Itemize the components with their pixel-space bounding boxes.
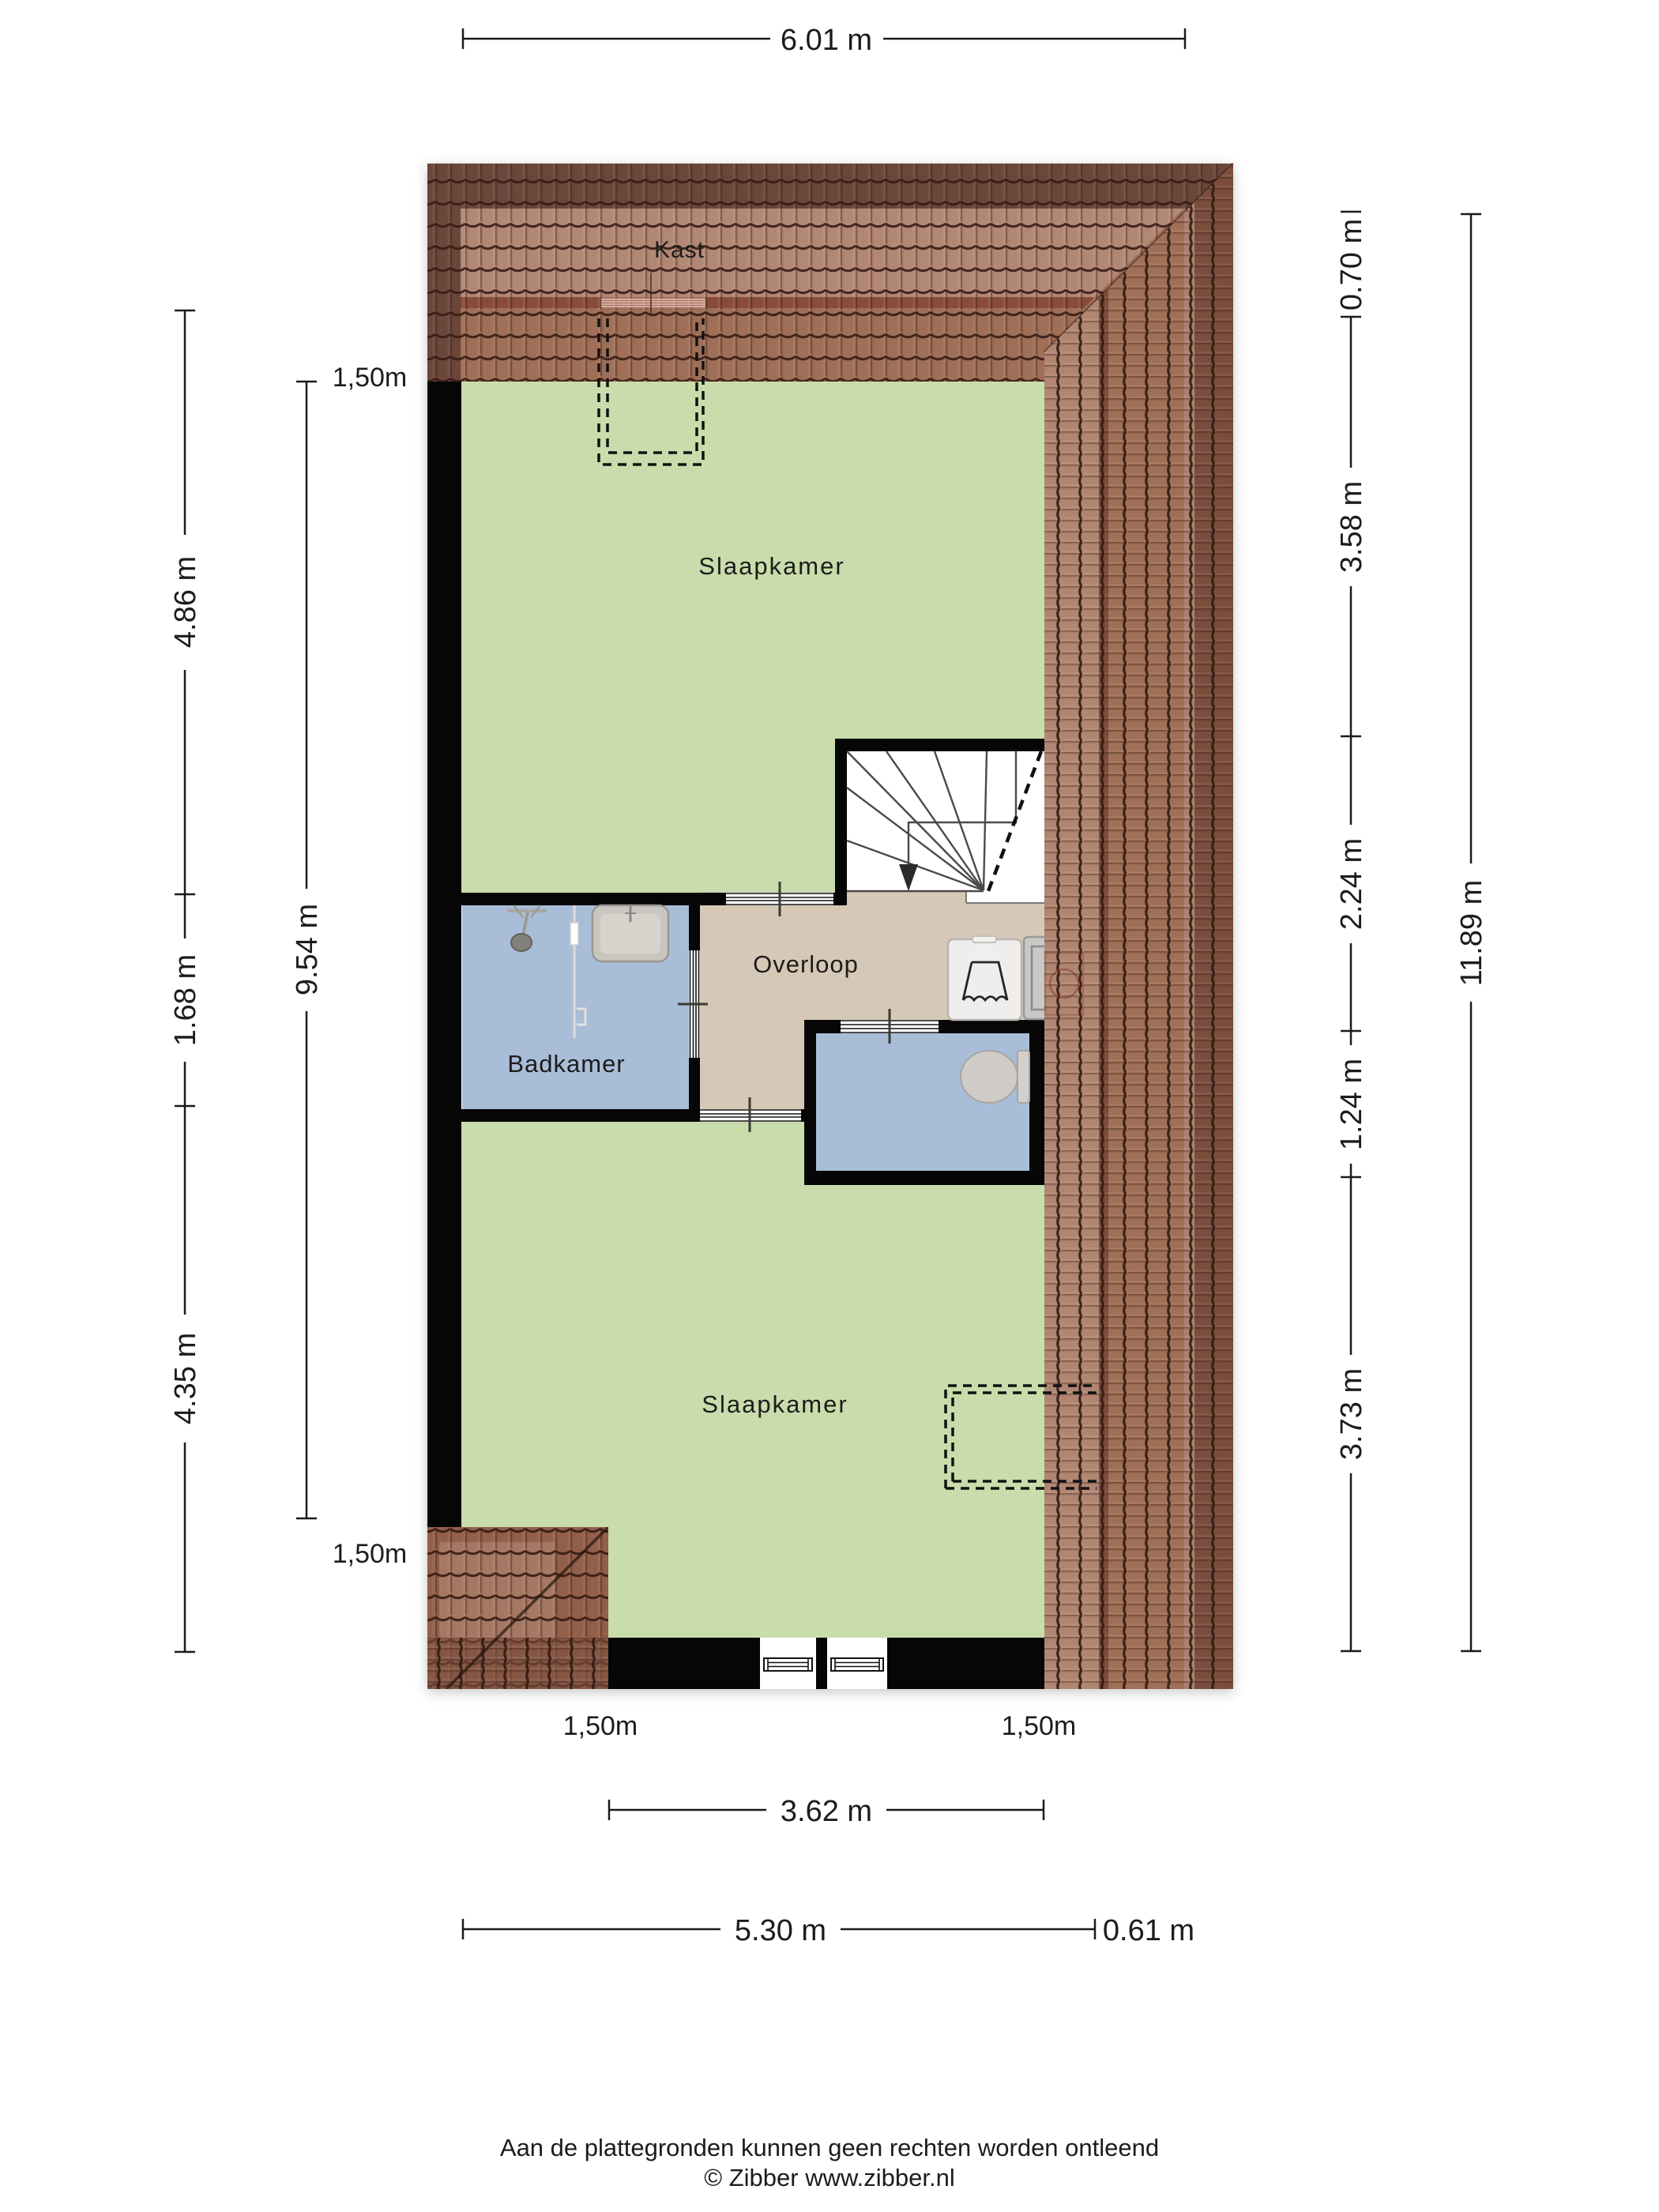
svg-text:1.24 m: 1.24 m xyxy=(1335,1059,1368,1150)
svg-text:6.01 m: 6.01 m xyxy=(781,24,872,57)
svg-text:Aan de plattegronden kunnen ge: Aan de plattegronden kunnen geen rechten… xyxy=(500,2134,1159,2161)
svg-text:3.58 m: 3.58 m xyxy=(1335,481,1368,573)
svg-text:4.86 m: 4.86 m xyxy=(169,556,202,648)
svg-text:3.62 m: 3.62 m xyxy=(781,1795,872,1828)
svg-text:Overloop: Overloop xyxy=(753,950,859,978)
svg-text:11.89 m: 11.89 m xyxy=(1455,880,1488,986)
svg-text:9.54 m: 9.54 m xyxy=(291,904,324,995)
svg-text:3.73 m: 3.73 m xyxy=(1335,1368,1368,1460)
svg-text:0.61 m: 0.61 m xyxy=(1103,1914,1194,1947)
svg-text:Badkamer: Badkamer xyxy=(507,1050,625,1078)
svg-text:2.24 m: 2.24 m xyxy=(1335,838,1368,930)
svg-text:© Zibber www.zibber.nl: © Zibber www.zibber.nl xyxy=(704,2164,954,2191)
svg-text:0.70 m: 0.70 m xyxy=(1335,219,1368,310)
svg-text:1,50m: 1,50m xyxy=(333,1539,408,1569)
svg-text:1.68 m: 1.68 m xyxy=(169,954,202,1046)
svg-text:Slaapkamer: Slaapkamer xyxy=(698,552,845,580)
svg-text:Slaapkamer: Slaapkamer xyxy=(702,1390,848,1418)
svg-text:5.30 m: 5.30 m xyxy=(735,1914,826,1947)
svg-text:1,50m: 1,50m xyxy=(563,1711,638,1741)
svg-text:Kast: Kast xyxy=(654,237,705,263)
svg-text:1,50m: 1,50m xyxy=(1002,1711,1077,1741)
svg-text:4.35 m: 4.35 m xyxy=(169,1333,202,1424)
svg-text:1,50m: 1,50m xyxy=(333,363,408,393)
